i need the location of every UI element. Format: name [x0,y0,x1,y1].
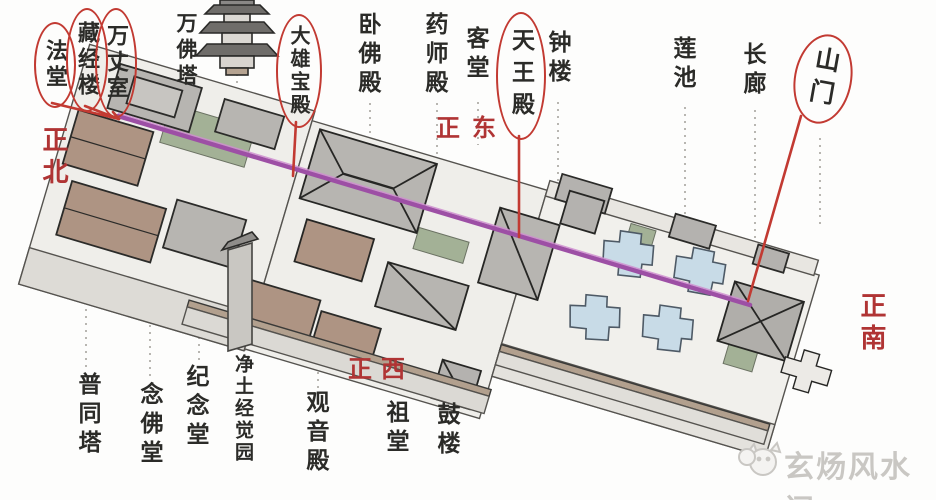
label-ketang: 客堂 [464,26,487,84]
label-guanyindian: 观音殿 [304,390,327,477]
label-daxiongbaodian: 大雄宝殿 [276,14,322,128]
label-wanfota: 万佛塔 [176,12,197,90]
label-gulou: 鼓楼 [435,402,458,460]
direction-south: 正南 [858,292,884,356]
watermark: 玄炀风水阁 [740,442,936,500]
label-lianchi: 莲池 [671,36,694,94]
watermark-text: 玄炀风水阁 [784,442,936,500]
pagoda-tower-slab [222,232,258,351]
direction-west: 正西 [348,349,414,384]
label-zutang: 祖堂 [384,400,407,458]
label-yaoshidian: 药师殿 [423,12,446,99]
label-jingtujingjueyuan: 净土经觉园 [233,354,252,464]
label-jiniantang: 纪念堂 [184,364,207,451]
label-wanzhangshi: 万丈室 [95,8,137,118]
label-nianfotang: 念佛堂 [138,382,161,469]
label-wofodian: 卧佛殿 [356,12,379,99]
label-zhonglou: 钟楼 [546,30,569,88]
temple-layout-diagram: 法堂 藏经楼 万丈室 万佛塔 大雄宝殿 卧佛殿 药师殿 客堂 天王殿 钟楼 莲池… [0,0,936,500]
direction-east: 正东 [436,108,508,143]
pagoda-illustration [196,0,278,75]
direction-north: 正北 [40,126,66,190]
label-changlang: 长廊 [741,42,764,100]
label-putongta: 普同塔 [76,372,99,459]
